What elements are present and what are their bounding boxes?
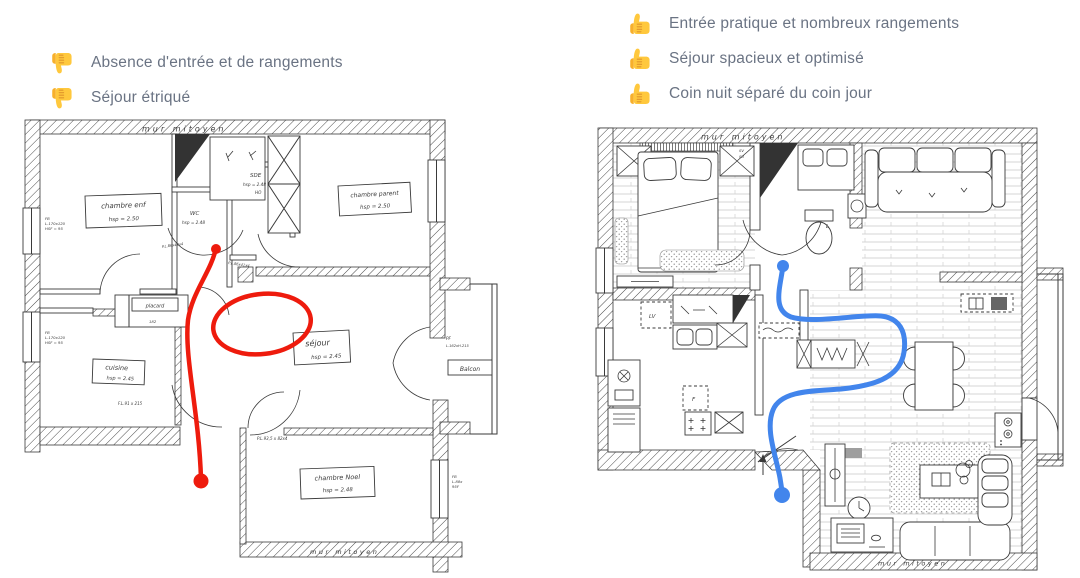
verdict-item: Séjour étriqué xyxy=(48,85,343,111)
svg-text:HO: HO xyxy=(255,190,262,195)
svg-text:95F: 95F xyxy=(452,484,460,489)
svg-text:hsp = 2.45: hsp = 2.45 xyxy=(106,375,134,382)
svg-text:placard: placard xyxy=(145,304,165,310)
thumbs-down-icon xyxy=(48,50,74,76)
room-label-chambre-noel: chambre Noel hsp = 2.48 xyxy=(300,466,375,499)
floor-plan-before: mur mitoyen chambre enf hsp = 2.50 chamb… xyxy=(22,112,502,574)
red-end-dot xyxy=(194,474,209,489)
svg-text:hsp = 2.48: hsp = 2.48 xyxy=(182,220,205,225)
svg-text:P.L.93,5 x 82x4: P.L.93,5 x 82x4 xyxy=(257,436,288,441)
mur-mitoyen-bottom-label: mur mitoyen xyxy=(310,548,379,556)
verdict-label: Coin nuit séparé du coin jour xyxy=(669,85,872,103)
verdict-label: Séjour étriqué xyxy=(91,89,190,107)
room-label-sejour: séjour hsp = 2.45 xyxy=(293,330,351,365)
thumbs-up-icon xyxy=(626,11,652,37)
room-label-chambre-enf: chambre enf hsp = 2.50 xyxy=(85,193,162,228)
verdict-item: Séjour spacieux et optimisé xyxy=(626,46,959,72)
svg-text:SU: SU xyxy=(739,154,744,159)
verdict-label: Entrée pratique et nombreux rangements xyxy=(669,15,959,33)
room-label-balcon: Balcon PF L.162xH.215 xyxy=(446,336,492,375)
svg-text:chambre enf: chambre enf xyxy=(101,201,147,211)
room-label-cuisine: cuisine hsp = 2.45 xyxy=(92,359,145,385)
verdict-item: Coin nuit séparé du coin jour xyxy=(626,81,959,107)
thumbs-down-icon xyxy=(48,85,74,111)
lavabo-label: L xyxy=(826,224,829,230)
verdict-item: Entrée pratique et nombreux rangements xyxy=(626,11,959,37)
svg-text:HSF = 95: HSF = 95 xyxy=(45,226,63,231)
mur-mitoyen-top-label: mur mitoyen xyxy=(142,125,226,134)
blue-start-dot xyxy=(777,260,789,272)
room-label-wc: WC xyxy=(190,211,199,217)
svg-text:Balcon: Balcon xyxy=(460,366,480,373)
svg-text:SV: SV xyxy=(739,148,744,153)
verdict-item: Absence d'entrée et de rangements xyxy=(48,50,343,76)
balcony xyxy=(440,278,497,434)
thumbs-up-icon xyxy=(626,46,652,72)
mur-mitoyen-top-label: mur mitoyen xyxy=(701,133,785,142)
mur-mitoyen-bottom-label: mur mitoyen xyxy=(878,560,947,568)
svg-text:séjour: séjour xyxy=(305,337,331,348)
before-verdict-list: Absence d'entrée et de rangements Séjour… xyxy=(48,50,343,120)
thumbs-up-icon xyxy=(626,81,652,107)
verdict-label: Séjour spacieux et optimisé xyxy=(669,50,864,68)
svg-text:F.L.91 x 215: F.L.91 x 215 xyxy=(118,401,143,406)
after-verdict-list: Entrée pratique et nombreux rangements S… xyxy=(626,11,959,116)
room-label-chambre-parent: chambre parent hsp = 2.50 xyxy=(338,182,411,216)
svg-text:hsp = 2.48: hsp = 2.48 xyxy=(243,182,266,187)
svg-text:cuisine: cuisine xyxy=(105,363,128,372)
svg-text:HSF = 95: HSF = 95 xyxy=(45,340,63,345)
svg-text:L.162xH.215: L.162xH.215 xyxy=(446,344,470,348)
svg-text:182: 182 xyxy=(149,319,157,324)
svg-text:hsp = 2.48: hsp = 2.48 xyxy=(323,487,354,494)
room-label-sde: SDE xyxy=(250,173,262,179)
svg-text:hsp = 2.50: hsp = 2.50 xyxy=(109,216,140,223)
verdict-label: Absence d'entrée et de rangements xyxy=(91,54,343,72)
red-start-dot xyxy=(211,244,221,254)
floor-plan-after: SV SU L LV F xyxy=(593,118,1068,576)
blue-end-dot xyxy=(774,487,790,503)
svg-text:PF: PF xyxy=(446,336,452,341)
svg-text:chambre Noel: chambre Noel xyxy=(314,473,360,483)
door-arcs xyxy=(100,228,430,435)
